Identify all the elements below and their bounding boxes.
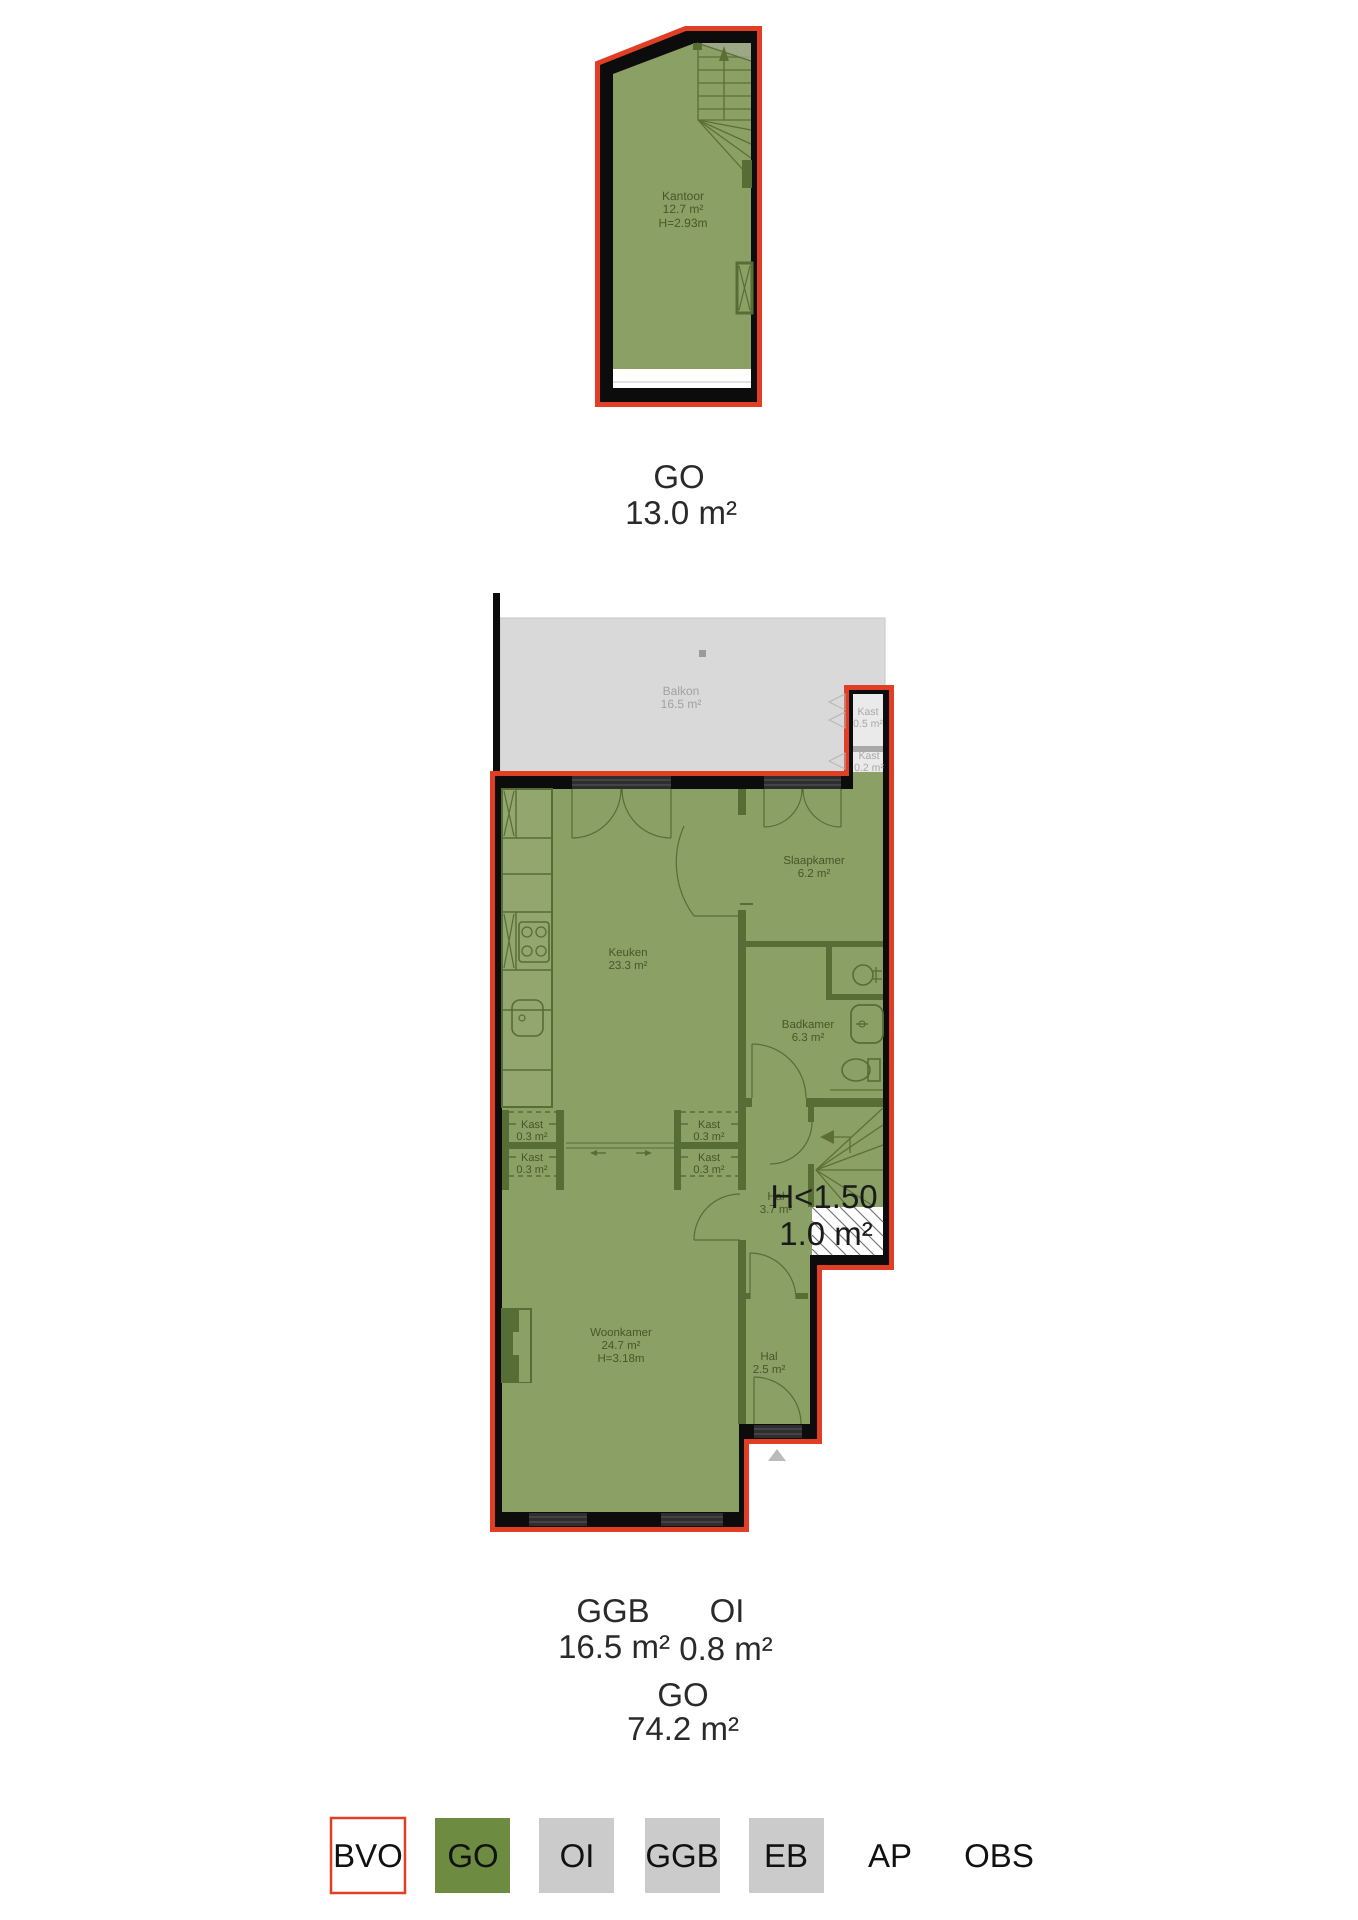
svg-text:H=2.93m: H=2.93m xyxy=(658,216,707,230)
svg-text:GO: GO xyxy=(657,1676,708,1713)
svg-text:Kast: Kast xyxy=(857,706,878,718)
svg-text:12.7 m²: 12.7 m² xyxy=(663,202,704,216)
svg-text:Hal: Hal xyxy=(760,1351,777,1363)
svg-text:Kantoor: Kantoor xyxy=(662,189,704,203)
svg-text:16.5 m²: 16.5 m² xyxy=(558,1628,670,1665)
svg-text:Badkamer: Badkamer xyxy=(782,1019,835,1031)
svg-text:23.3 m²: 23.3 m² xyxy=(609,960,648,972)
svg-text:GGB: GGB xyxy=(576,1592,649,1629)
svg-text:Kast: Kast xyxy=(698,1119,720,1131)
svg-text:OI: OI xyxy=(560,1837,595,1874)
svg-text:Woonkamer: Woonkamer xyxy=(590,1327,652,1339)
svg-text:Slaapkamer: Slaapkamer xyxy=(783,855,845,867)
svg-text:Kast: Kast xyxy=(521,1119,543,1131)
svg-text:6.2 m²: 6.2 m² xyxy=(798,868,831,880)
svg-text:GO: GO xyxy=(653,458,704,495)
svg-text:2.5 m²: 2.5 m² xyxy=(753,1364,786,1376)
svg-text:16.5 m²: 16.5 m² xyxy=(661,697,702,711)
svg-text:OI: OI xyxy=(710,1592,745,1629)
svg-text:H=3.18m: H=3.18m xyxy=(598,1353,645,1365)
svg-text:0.3 m²: 0.3 m² xyxy=(516,1131,548,1143)
svg-text:74.2 m²: 74.2 m² xyxy=(627,1710,739,1747)
svg-text:13.0 m²: 13.0 m² xyxy=(625,494,737,531)
svg-text:Balkon: Balkon xyxy=(663,684,700,698)
svg-text:1.0 m²: 1.0 m² xyxy=(779,1215,873,1252)
svg-text:0.8 m²: 0.8 m² xyxy=(679,1630,773,1667)
svg-text:24.7 m²: 24.7 m² xyxy=(602,1340,641,1352)
svg-text:0.3 m²: 0.3 m² xyxy=(516,1164,548,1176)
svg-text:OBS: OBS xyxy=(964,1837,1034,1874)
svg-text:Kast: Kast xyxy=(698,1152,720,1164)
svg-text:GO: GO xyxy=(447,1837,498,1874)
svg-text:AP: AP xyxy=(868,1837,912,1874)
svg-text:Keuken: Keuken xyxy=(608,947,647,959)
svg-text:6.3 m²: 6.3 m² xyxy=(792,1032,825,1044)
svg-text:BVO: BVO xyxy=(333,1837,403,1874)
svg-text:0.2 m²: 0.2 m² xyxy=(854,762,884,774)
svg-text:GGB: GGB xyxy=(645,1837,718,1874)
svg-text:0.3 m²: 0.3 m² xyxy=(693,1131,725,1143)
svg-text:0.5 m²: 0.5 m² xyxy=(853,718,883,730)
svg-text:EB: EB xyxy=(764,1837,808,1874)
svg-text:Kast: Kast xyxy=(858,750,879,762)
svg-text:Kast: Kast xyxy=(521,1152,543,1164)
svg-text:H<1.50: H<1.50 xyxy=(770,1178,877,1215)
svg-text:0.3 m²: 0.3 m² xyxy=(693,1164,725,1176)
